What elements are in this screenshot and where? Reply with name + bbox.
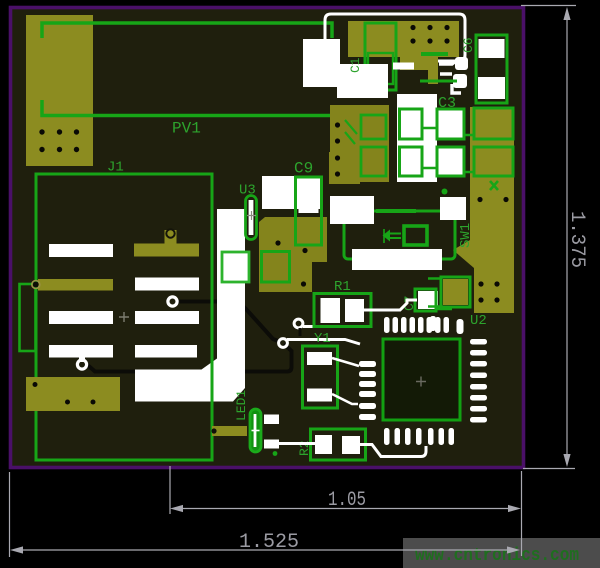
svg-text:1.525: 1.525 [239,531,299,554]
svg-text:1.05: 1.05 [328,489,366,512]
svg-text:C9: C9 [294,160,313,178]
svg-text:C1: C1 [348,57,363,73]
svg-text:SW1: SW1 [458,223,474,248]
svg-text:www.cntronics.com: www.cntronics.com [415,546,579,566]
svg-text:PV1: PV1 [172,120,201,138]
svg-text:U2: U2 [470,313,487,329]
svg-text:1.375: 1.375 [565,211,588,268]
svg-text:LED1: LED1 [234,390,249,421]
svg-text:C6: C6 [461,37,476,53]
